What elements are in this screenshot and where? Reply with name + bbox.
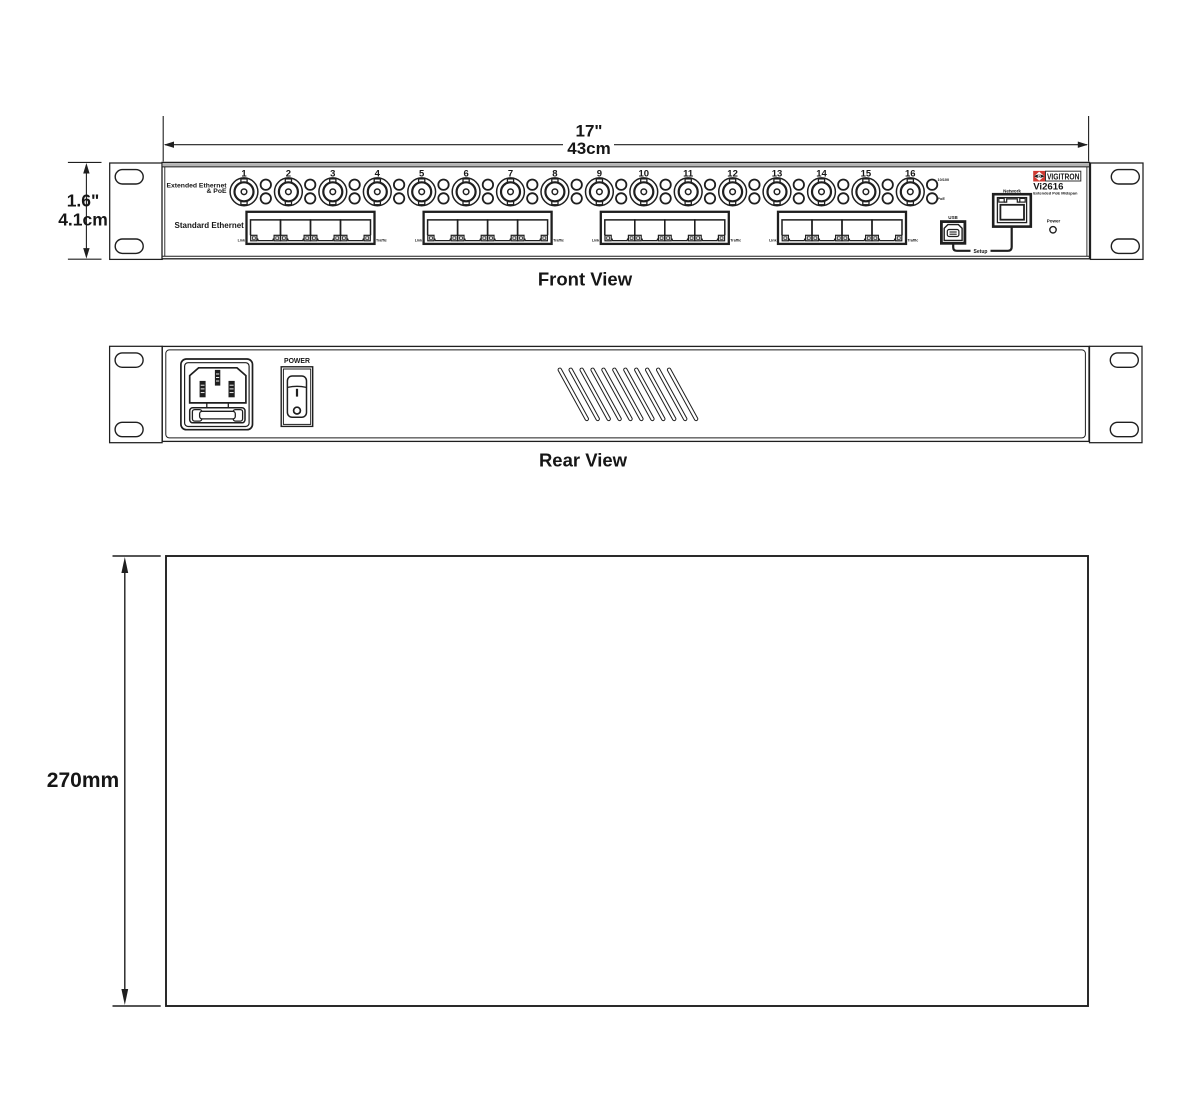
svg-text:Rear View: Rear View	[539, 450, 628, 471]
svg-text:PoE: PoE	[938, 197, 946, 201]
svg-text:Link: Link	[238, 239, 245, 243]
svg-text:4.1cm: 4.1cm	[58, 210, 108, 230]
svg-text:USB: USB	[948, 215, 958, 220]
svg-text:Extended PoE Midspan: Extended PoE Midspan	[1033, 190, 1078, 195]
svg-text:Standard Ethernet: Standard Ethernet	[175, 221, 245, 230]
svg-text:Link: Link	[769, 239, 776, 243]
svg-text:& PoE: & PoE	[206, 188, 226, 195]
svg-text:Traffic: Traffic	[376, 239, 387, 243]
svg-text:Link: Link	[415, 239, 422, 243]
svg-text:43cm: 43cm	[567, 139, 610, 158]
svg-text:17": 17"	[576, 122, 603, 141]
svg-text:VIGITRON: VIGITRON	[1047, 172, 1080, 182]
svg-text:10/100: 10/100	[938, 178, 950, 182]
svg-text:Traffic: Traffic	[730, 239, 741, 243]
svg-text:Power: Power	[1047, 219, 1061, 224]
svg-text:270mm: 270mm	[47, 769, 119, 792]
svg-text:Front View: Front View	[538, 269, 633, 290]
svg-text:Traffic: Traffic	[908, 239, 919, 243]
svg-text:Traffic: Traffic	[553, 239, 564, 243]
svg-text:Link: Link	[592, 239, 599, 243]
svg-text:POWER: POWER	[284, 358, 310, 365]
svg-text:1.6": 1.6"	[67, 191, 100, 211]
svg-text:Setup: Setup	[974, 249, 988, 255]
svg-text:Network: Network	[1003, 188, 1021, 193]
